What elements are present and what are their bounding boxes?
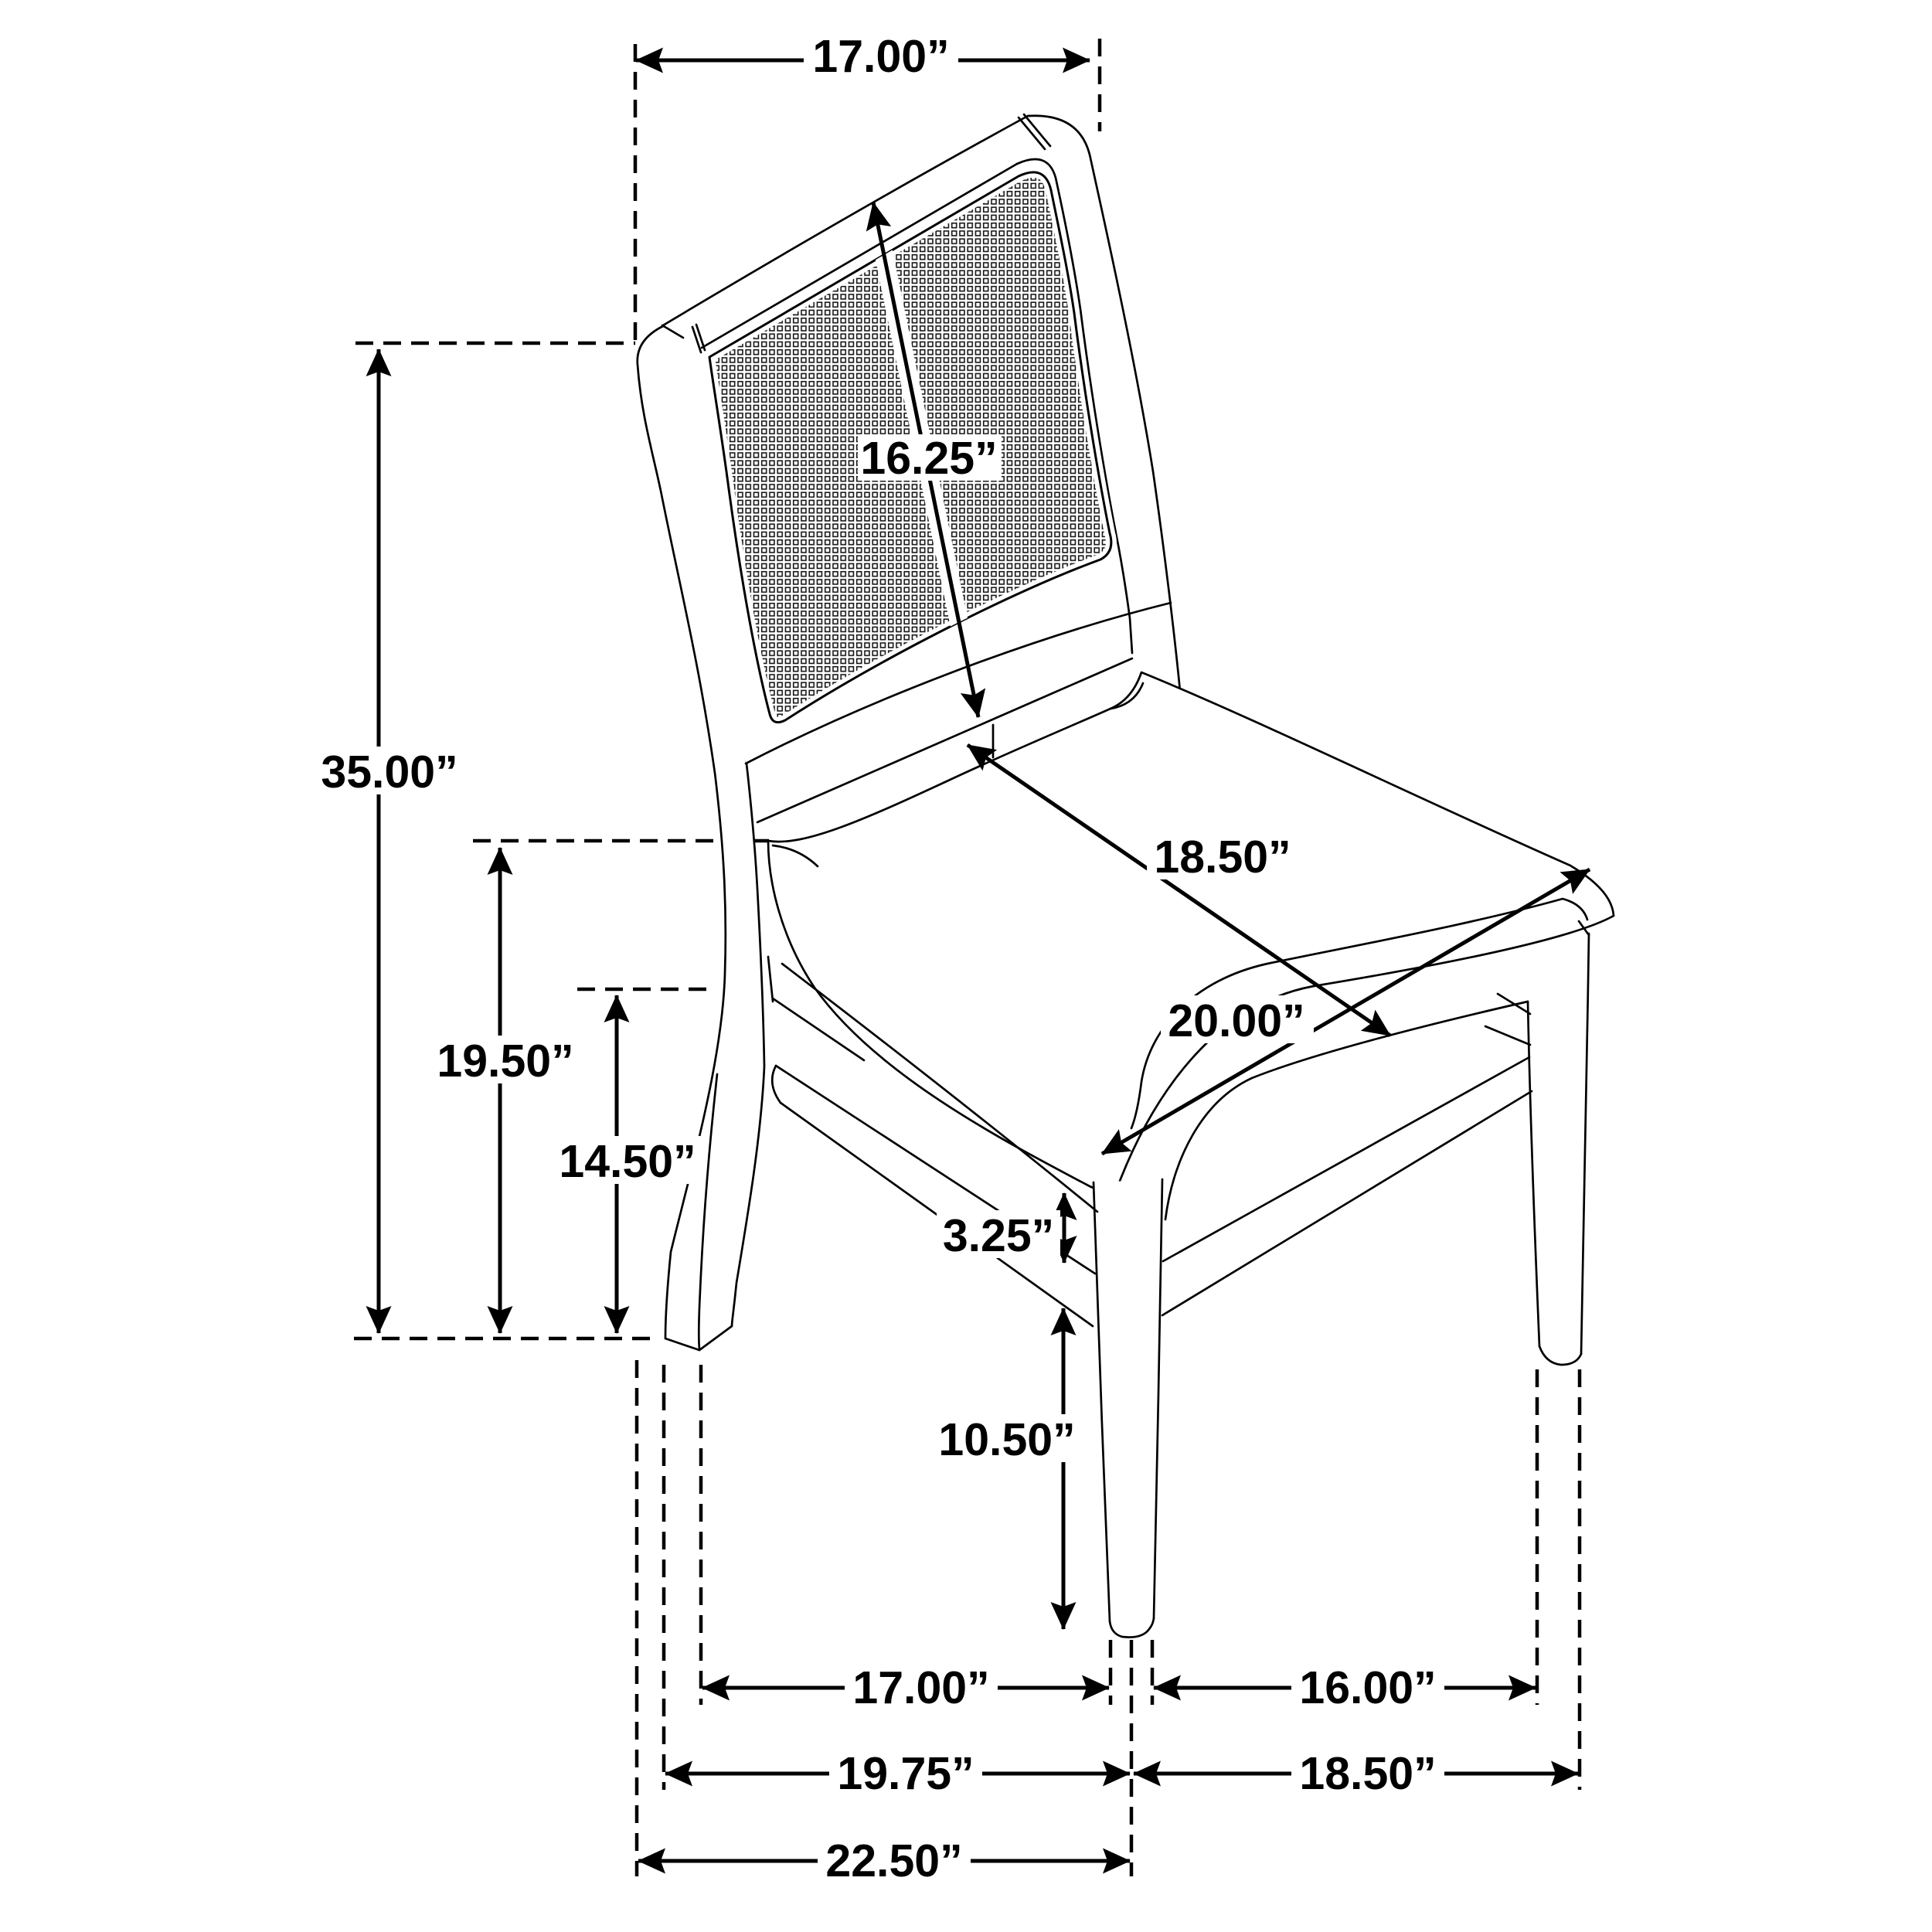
svg-text:19.75”: 19.75”	[837, 1748, 974, 1799]
svg-text:17.00”: 17.00”	[812, 31, 949, 82]
svg-text:14.50”: 14.50”	[559, 1136, 696, 1187]
svg-text:18.50”: 18.50”	[1299, 1748, 1436, 1799]
svg-text:16.00”: 16.00”	[1299, 1662, 1436, 1713]
svg-text:18.50”: 18.50”	[1154, 832, 1291, 883]
svg-text:16.25”: 16.25”	[860, 433, 997, 484]
svg-text:10.50”: 10.50”	[938, 1414, 1075, 1465]
svg-text:17.00”: 17.00”	[852, 1662, 989, 1713]
svg-text:3.25”: 3.25”	[943, 1210, 1054, 1261]
svg-text:20.00”: 20.00”	[1168, 995, 1304, 1046]
svg-text:19.50”: 19.50”	[437, 1036, 573, 1087]
svg-text:35.00”: 35.00”	[321, 747, 457, 798]
svg-text:22.50”: 22.50”	[825, 1835, 962, 1886]
